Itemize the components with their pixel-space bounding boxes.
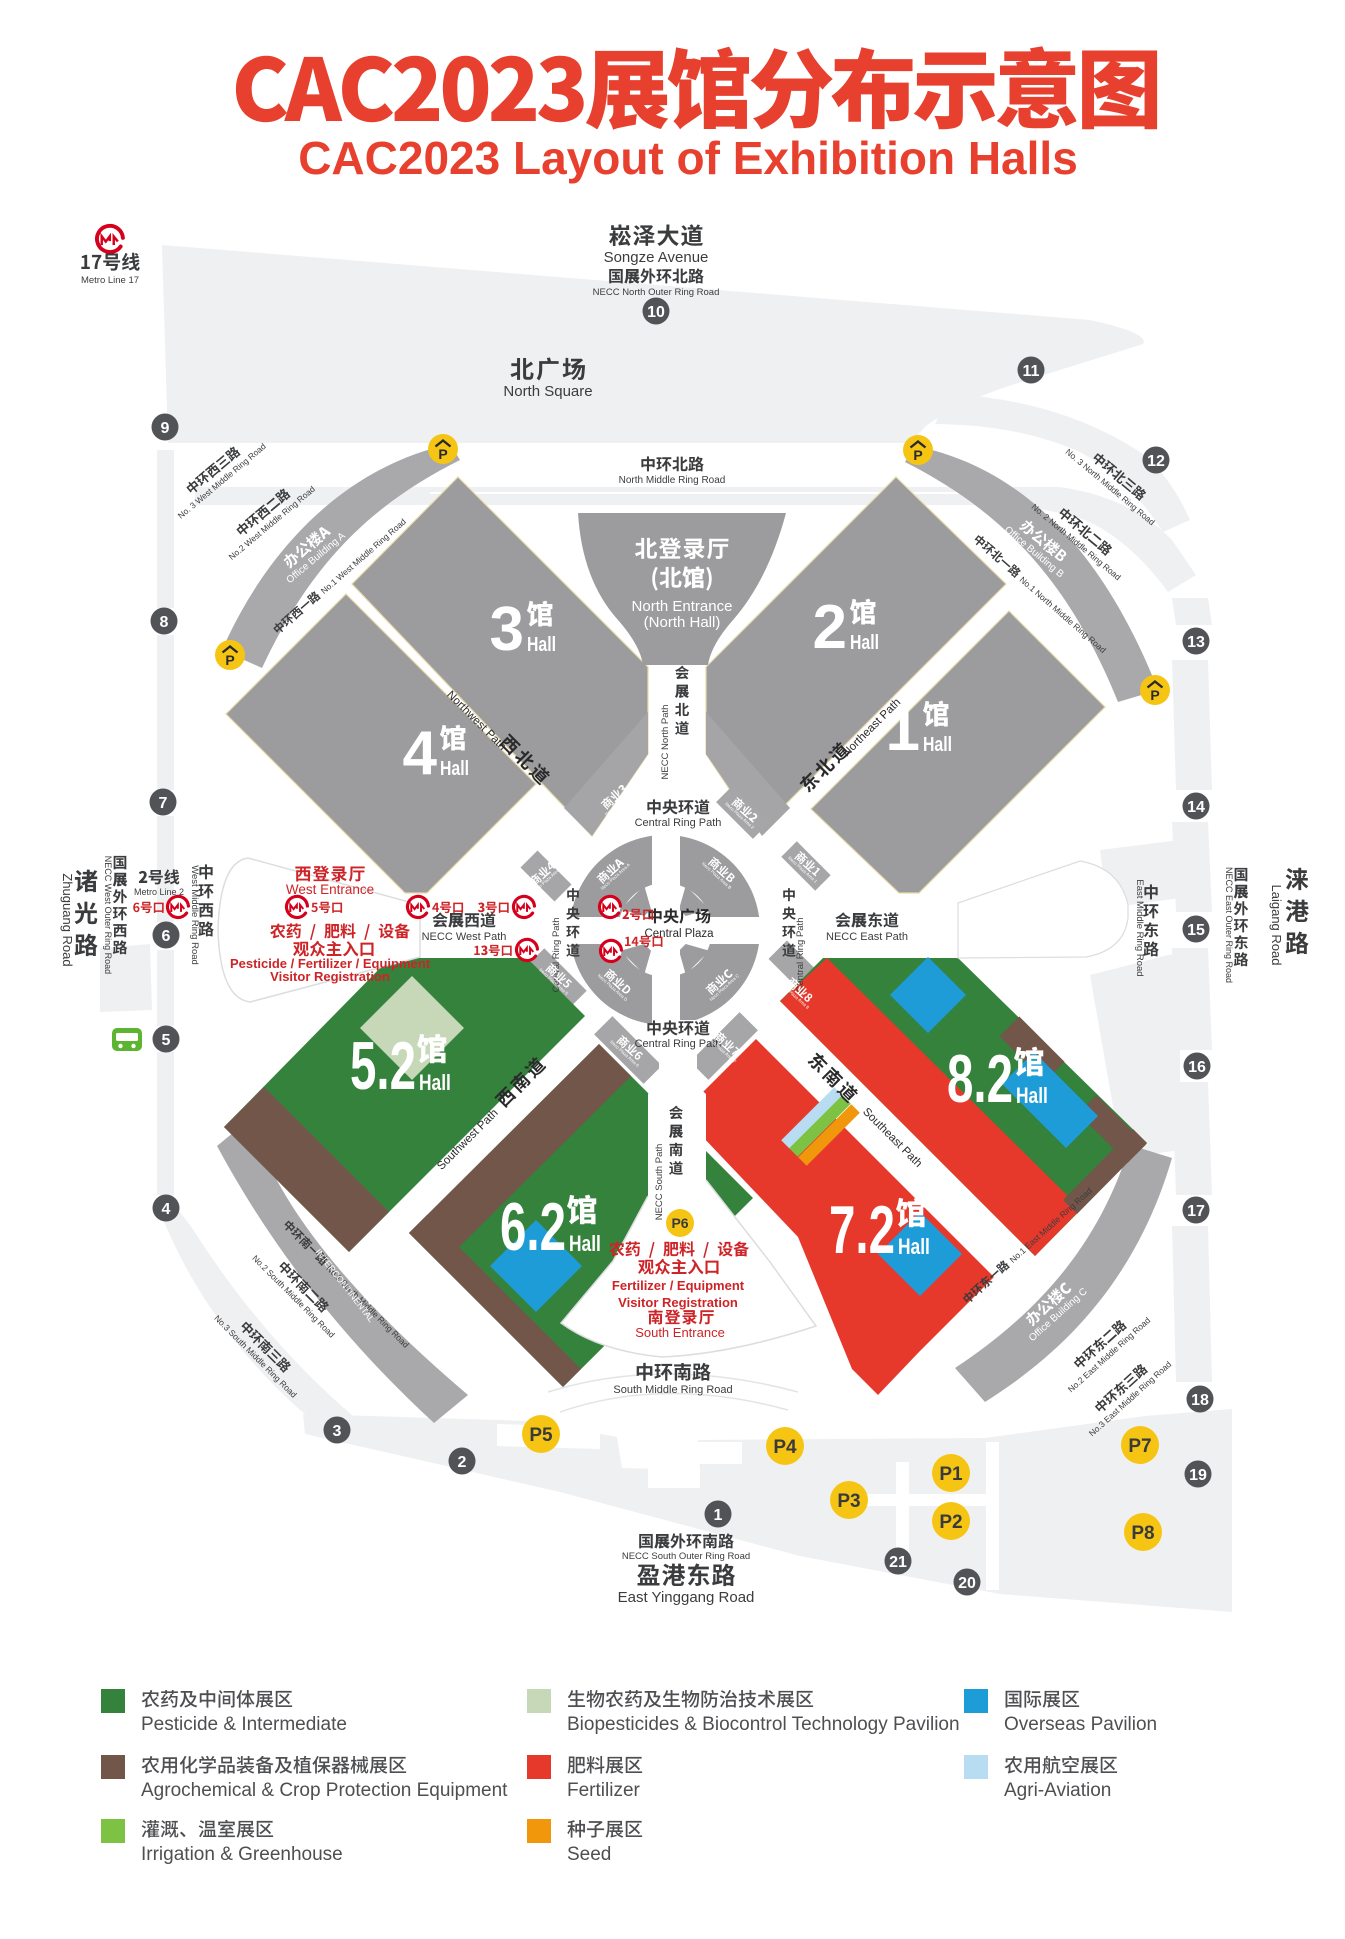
svg-text:Central Ring Path: Central Ring Path — [635, 817, 722, 829]
svg-text:7: 7 — [159, 795, 168, 812]
svg-text:Visitor Registration: Visitor Registration — [618, 1295, 738, 1310]
svg-text:18: 18 — [1191, 1392, 1209, 1409]
svg-text:20: 20 — [958, 1575, 976, 1592]
svg-text:Songze Avenue: Songze Avenue — [604, 249, 709, 266]
svg-text:NECC West Path: NECC West Path — [422, 931, 507, 943]
svg-text:Zhuguang Road: Zhuguang Road — [60, 873, 75, 966]
svg-text:10: 10 — [647, 304, 665, 321]
svg-text:Hall: Hall — [419, 1070, 451, 1095]
svg-text:East Middle Ring Road: East Middle Ring Road — [1134, 879, 1145, 976]
svg-text:P6: P6 — [671, 1215, 688, 1231]
svg-text:4: 4 — [162, 1201, 171, 1218]
svg-text:NECC South Path: NECC South Path — [654, 1144, 665, 1221]
svg-text:P: P — [438, 446, 447, 462]
svg-text:3: 3 — [490, 595, 524, 664]
svg-text:Hall: Hall — [527, 634, 556, 656]
svg-text:8.2: 8.2 — [947, 1041, 1013, 1117]
svg-text:South Middle Ring Road: South Middle Ring Road — [613, 1384, 732, 1396]
svg-text:NECC West Outer Ring Road: NECC West Outer Ring Road — [103, 856, 113, 974]
svg-text:Hall: Hall — [923, 734, 952, 756]
svg-text:NECC East Path: NECC East Path — [826, 931, 908, 943]
svg-text:8: 8 — [160, 614, 169, 631]
svg-text:West Middle Ring Road: West Middle Ring Road — [189, 865, 200, 965]
svg-text:North Middle Ring Road: North Middle Ring Road — [619, 475, 726, 486]
svg-text:Seed: Seed — [567, 1844, 611, 1865]
svg-text:Hall: Hall — [440, 758, 469, 780]
svg-text:NECC North Path: NECC North Path — [660, 705, 671, 780]
svg-text:5: 5 — [162, 1032, 171, 1049]
svg-text:6.2: 6.2 — [500, 1189, 566, 1265]
svg-text:P1: P1 — [939, 1464, 963, 1485]
svg-text:14: 14 — [1187, 799, 1205, 816]
svg-text:P7: P7 — [1128, 1436, 1151, 1457]
svg-text:12: 12 — [1147, 453, 1165, 470]
svg-text:NECC South Outer Ring Road: NECC South Outer Ring Road — [622, 1551, 750, 1562]
svg-text:P: P — [225, 652, 234, 668]
svg-text:15: 15 — [1187, 922, 1205, 939]
svg-text:Central Plaza: Central Plaza — [644, 928, 714, 940]
svg-text:2: 2 — [813, 593, 847, 662]
svg-text:11: 11 — [1023, 363, 1040, 380]
svg-text:Overseas Pavilion: Overseas Pavilion — [1004, 1714, 1157, 1735]
svg-text:21: 21 — [889, 1554, 907, 1571]
svg-text:Agri-Aviation: Agri-Aviation — [1004, 1780, 1111, 1801]
svg-text:P: P — [913, 447, 922, 463]
svg-text:9: 9 — [161, 420, 170, 437]
svg-text:Agrochemical & Crop Protection: Agrochemical & Crop Protection Equipment — [141, 1780, 508, 1801]
svg-text:NECC North Outer Ring Road: NECC North Outer Ring Road — [593, 287, 720, 298]
svg-text:Hall: Hall — [569, 1231, 601, 1256]
svg-text:2: 2 — [458, 1454, 467, 1471]
svg-text:Metro Line 17: Metro Line 17 — [81, 275, 139, 286]
svg-text:(North Hall): (North Hall) — [644, 614, 721, 631]
svg-text:Biopesticides & Biocontrol Tec: Biopesticides & Biocontrol Technology Pa… — [567, 1714, 960, 1735]
svg-text:16: 16 — [1188, 1059, 1206, 1076]
svg-text:Laigang Road: Laigang Road — [1269, 885, 1284, 966]
svg-text:West Entrance: West Entrance — [286, 882, 374, 897]
svg-text:1: 1 — [714, 1507, 723, 1524]
svg-text:Hall: Hall — [850, 632, 879, 654]
svg-text:Irrigation & Greenhouse: Irrigation & Greenhouse — [141, 1844, 343, 1865]
svg-text:7.2: 7.2 — [829, 1192, 895, 1268]
svg-text:P5: P5 — [529, 1425, 553, 1446]
svg-text:P2: P2 — [939, 1512, 962, 1533]
svg-text:P8: P8 — [1131, 1523, 1154, 1544]
svg-text:5.2: 5.2 — [350, 1028, 416, 1104]
svg-text:Hall: Hall — [898, 1234, 930, 1259]
svg-text:Visitor Registration: Visitor Registration — [270, 969, 390, 984]
svg-text:North Entrance: North Entrance — [632, 598, 733, 615]
svg-text:P3: P3 — [837, 1491, 860, 1512]
svg-text:17: 17 — [1187, 1203, 1205, 1220]
svg-text:3: 3 — [333, 1423, 342, 1440]
svg-text:Pesticide & Intermediate: Pesticide & Intermediate — [141, 1714, 347, 1735]
svg-text:Fertilizer: Fertilizer — [567, 1780, 641, 1801]
svg-text:P: P — [1150, 687, 1159, 703]
svg-text:P4: P4 — [773, 1437, 797, 1458]
svg-text:South Entrance: South Entrance — [635, 1325, 725, 1340]
svg-text:19: 19 — [1189, 1467, 1207, 1484]
svg-text:13: 13 — [1187, 634, 1205, 651]
svg-text:6: 6 — [162, 928, 171, 945]
svg-text:NECC East Outer Ring Road: NECC East Outer Ring Road — [1224, 867, 1234, 983]
svg-text:Fertilizer / Equipment: Fertilizer / Equipment — [612, 1278, 745, 1293]
svg-text:CAC2023 Layout of Exhibition H: CAC2023 Layout of Exhibition Halls — [298, 132, 1078, 184]
svg-text:Hall: Hall — [1016, 1083, 1048, 1108]
svg-text:East Yinggang Road: East Yinggang Road — [618, 1589, 755, 1606]
svg-text:North Square: North Square — [503, 383, 592, 400]
svg-text:4: 4 — [403, 719, 438, 788]
